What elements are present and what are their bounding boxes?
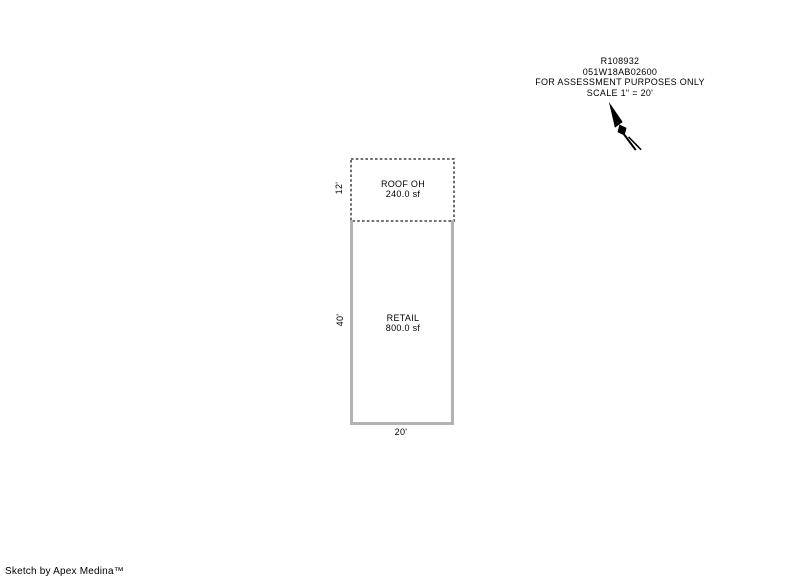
assessment-header: R108932 051W18AB02600 FOR ASSESSMENT PUR… [480,56,760,98]
roof-area-sqft: 240.0 sf [350,189,456,199]
retail-area: RETAIL 800.0 sf [350,313,456,333]
map-taxlot-number: 051W18AB02600 [480,67,760,78]
sketch-credit: Sketch by Apex Medina™ [5,566,124,577]
north-arrow-head [604,100,624,128]
assessment-notice: FOR ASSESSMENT PURPOSES ONLY [480,77,760,88]
retail-area-label: RETAIL [350,313,456,323]
assessment-sketch-page: R108932 051W18AB02600 FOR ASSESSMENT PUR… [0,0,800,587]
retail-area-sqft: 800.0 sf [350,323,456,333]
retail-width-dimension: 20' [386,427,416,437]
roof-depth-dimension: 12' [334,177,344,199]
account-number: R108932 [480,56,760,67]
roof-overhang-area: ROOF OH 240.0 sf [350,179,456,199]
roof-area-label: ROOF OH [350,179,456,189]
north-arrow-icon [598,96,646,164]
retail-depth-dimension: 40' [335,309,345,331]
